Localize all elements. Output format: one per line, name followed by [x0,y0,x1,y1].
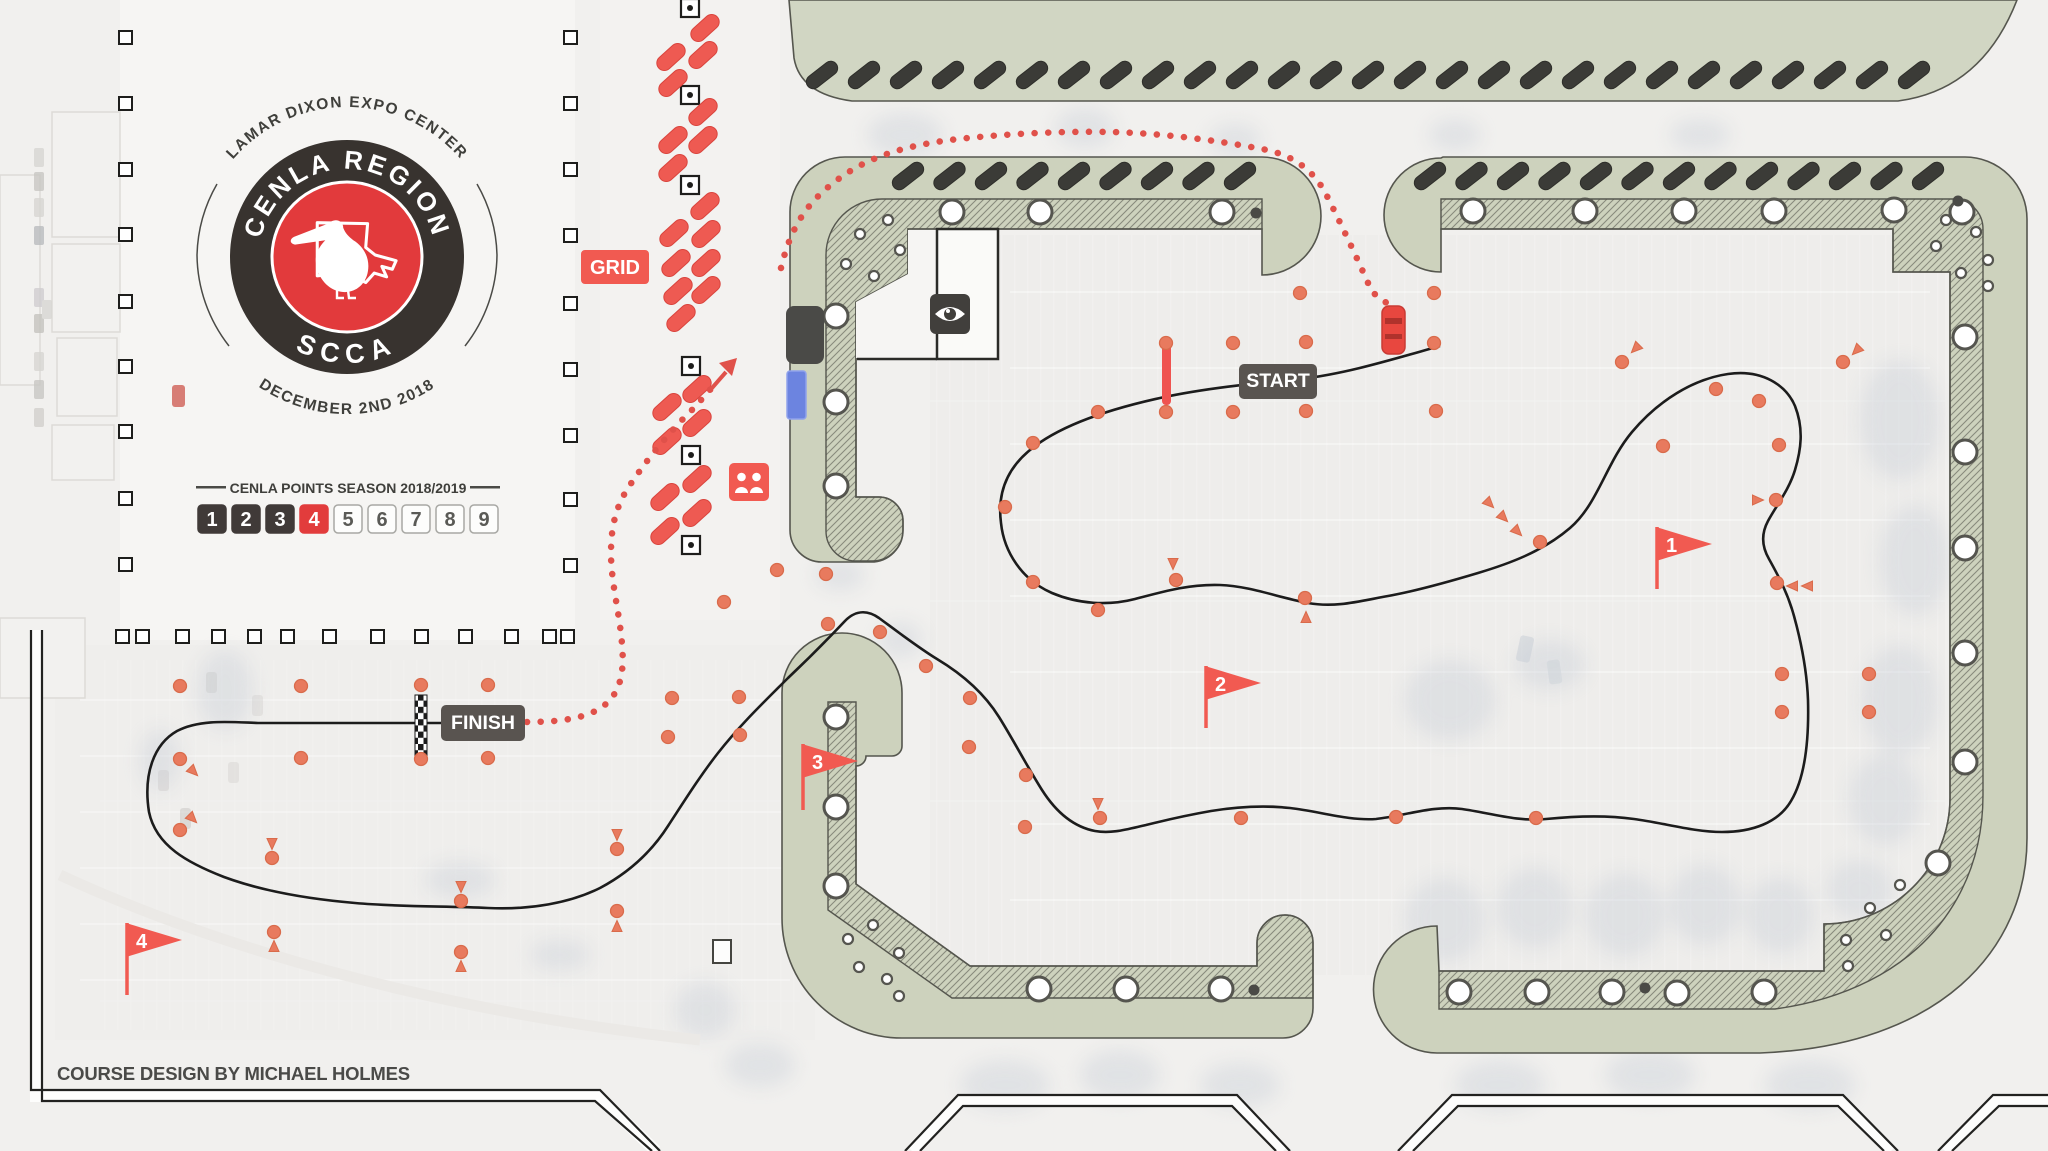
svg-text:START: START [1246,370,1310,392]
svg-text:4: 4 [136,931,148,953]
svg-text:3: 3 [274,509,285,531]
svg-text:7: 7 [410,509,421,531]
svg-text:6: 6 [376,509,387,531]
svg-text:3: 3 [812,752,823,774]
svg-text:1: 1 [206,509,217,531]
svg-text:FINISH: FINISH [451,712,515,734]
svg-text:9: 9 [478,509,489,531]
svg-text:1: 1 [1666,535,1677,557]
svg-text:8: 8 [444,509,455,531]
svg-text:CENLA POINTS SEASON 2018/2019: CENLA POINTS SEASON 2018/2019 [230,480,467,496]
svg-text:2: 2 [1215,674,1226,696]
svg-text:4: 4 [308,509,320,531]
svg-text:2: 2 [240,509,251,531]
svg-text:COURSE DESIGN BY MICHAEL HOLME: COURSE DESIGN BY MICHAEL HOLMES [57,1063,410,1084]
svg-text:5: 5 [342,509,353,531]
svg-text:GRID: GRID [590,257,640,279]
